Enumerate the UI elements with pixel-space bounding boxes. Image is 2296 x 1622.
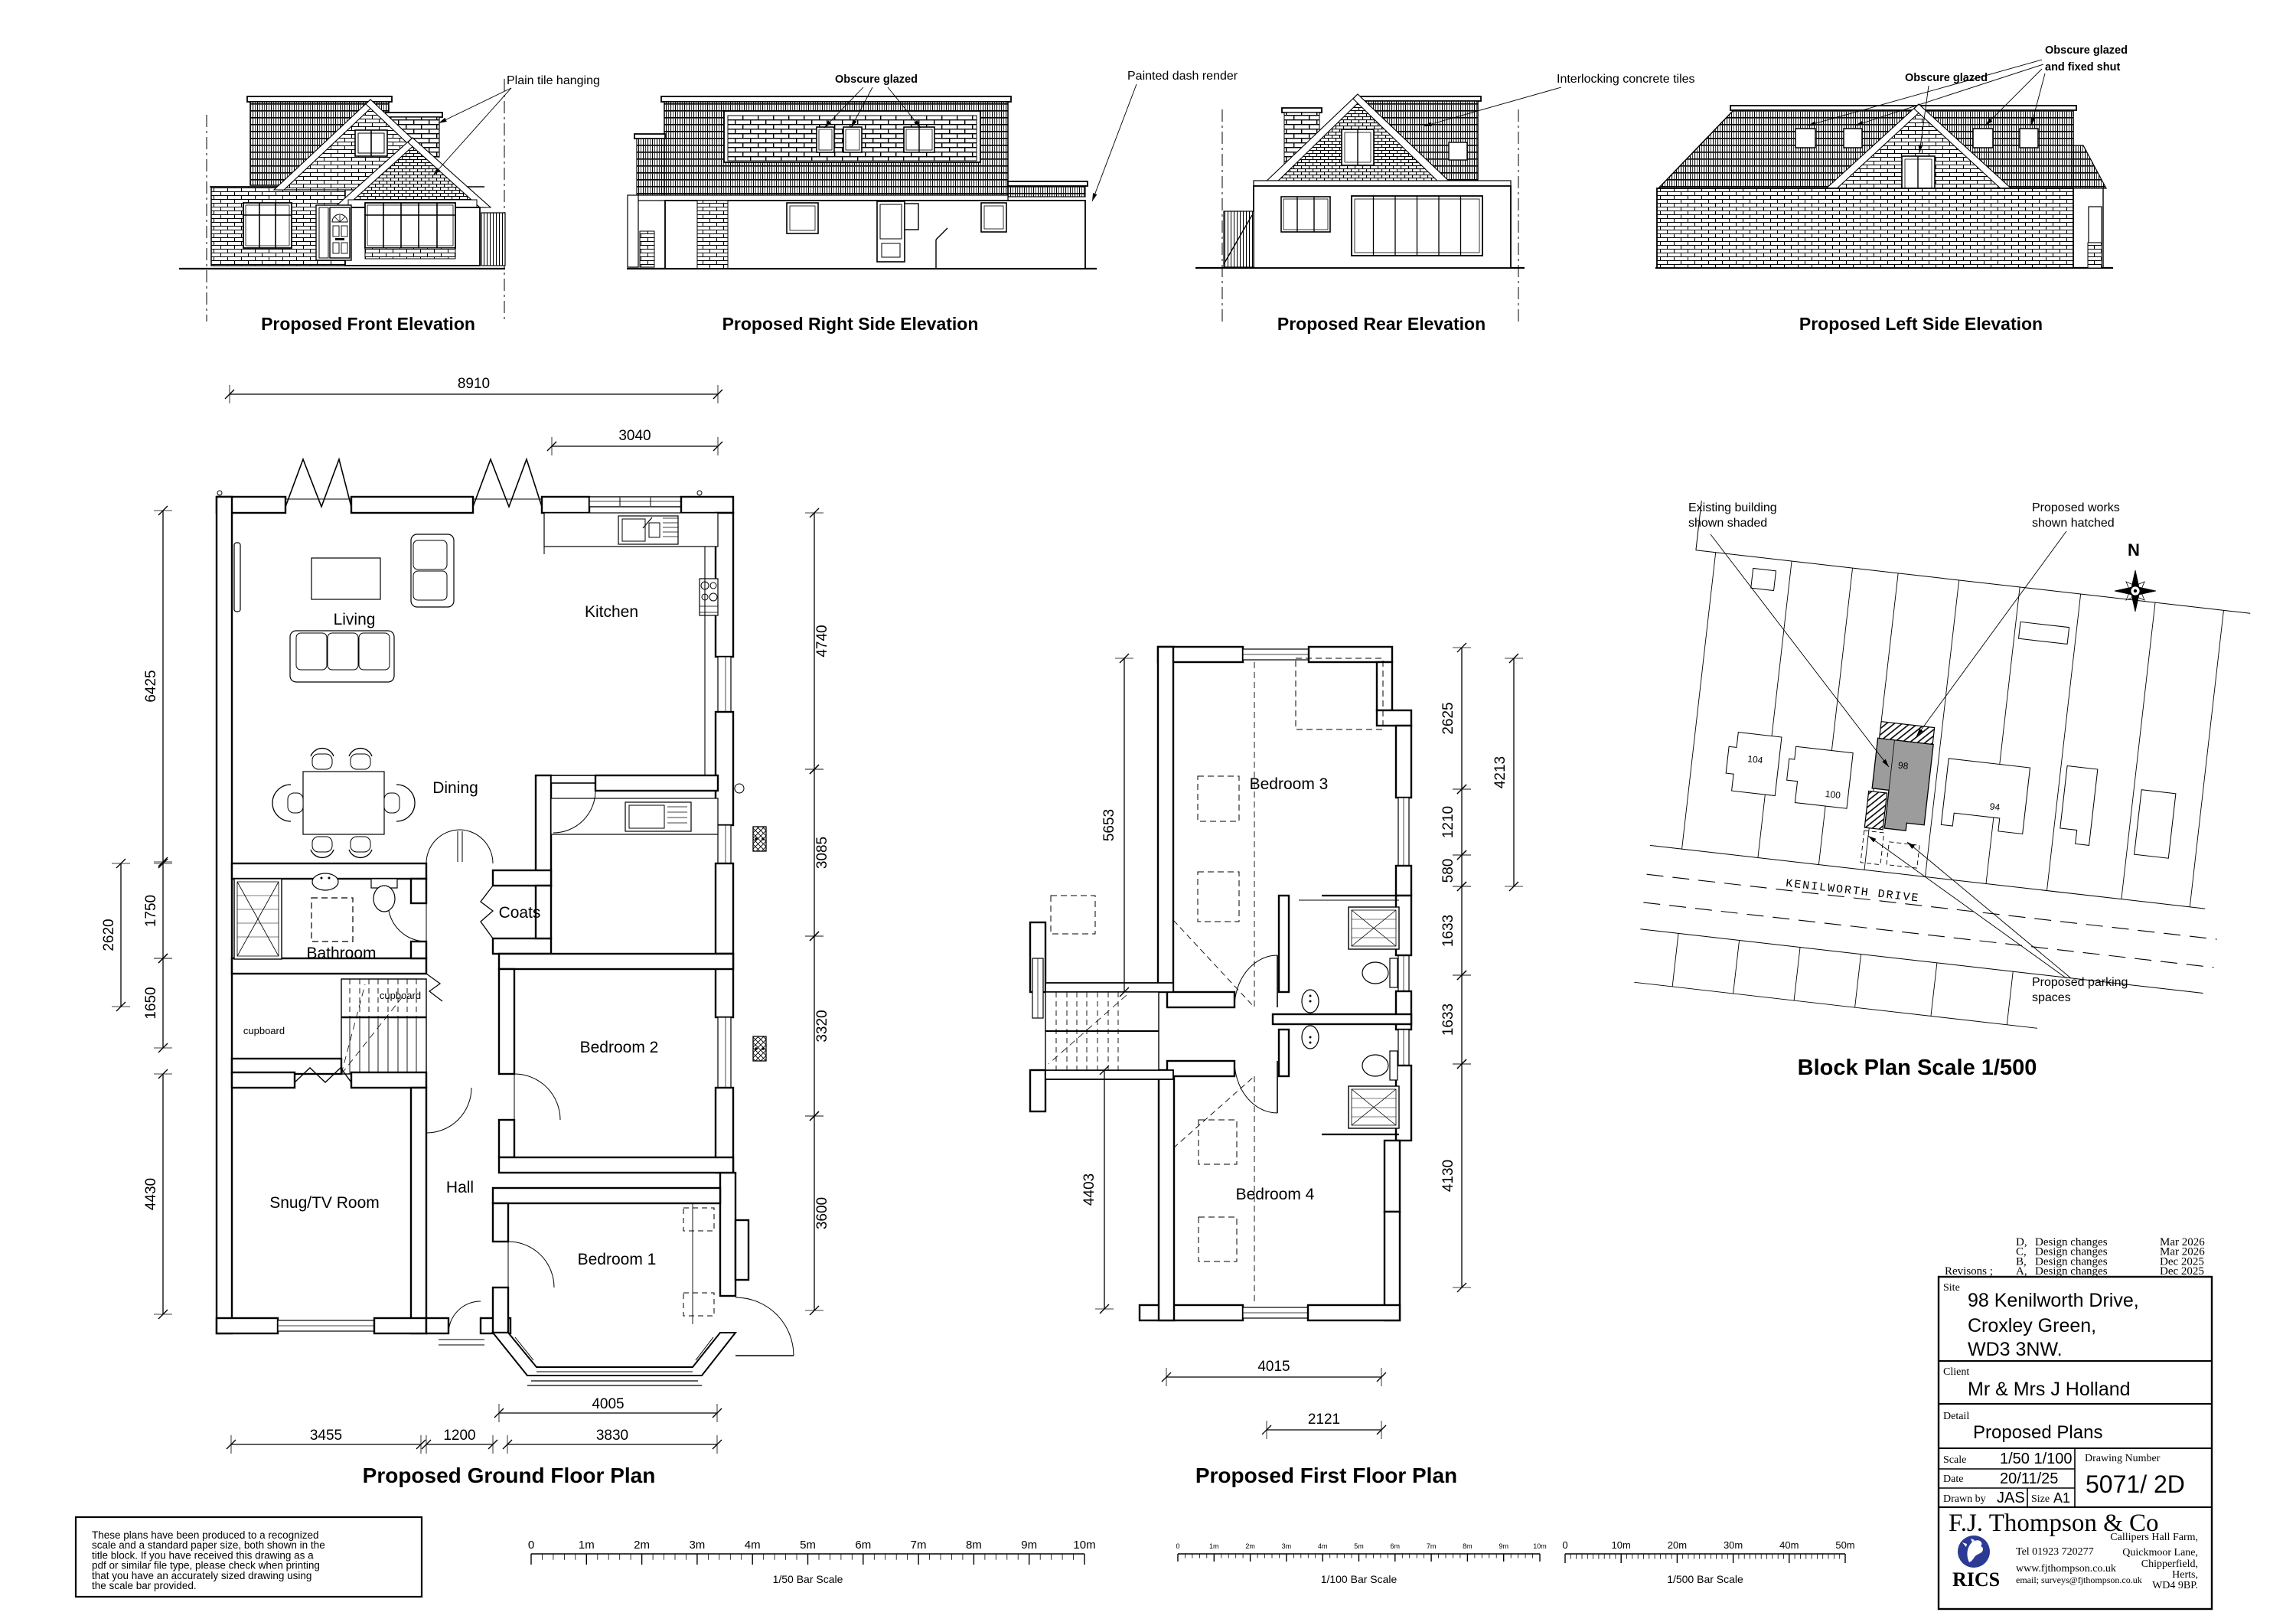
svg-text:2m: 2m bbox=[1245, 1542, 1255, 1550]
svg-text:580: 580 bbox=[1440, 859, 1456, 883]
svg-text:3600: 3600 bbox=[814, 1197, 830, 1229]
svg-text:4m: 4m bbox=[1318, 1542, 1328, 1550]
svg-text:Callipers Hall Farm,: Callipers Hall Farm, bbox=[2110, 1532, 2198, 1543]
svg-text:Bedroom 2: Bedroom 2 bbox=[580, 1039, 659, 1056]
svg-text:Interlocking concrete tiles: Interlocking concrete tiles bbox=[1557, 73, 1695, 86]
svg-text:6m: 6m bbox=[1391, 1542, 1401, 1550]
svg-text:1750: 1750 bbox=[143, 895, 159, 927]
svg-text:4403: 4403 bbox=[1081, 1173, 1097, 1206]
svg-text:50m: 50m bbox=[1835, 1539, 1854, 1551]
svg-text:7m: 7m bbox=[1427, 1542, 1437, 1550]
svg-text:8m: 8m bbox=[966, 1539, 982, 1552]
svg-text:2620: 2620 bbox=[101, 919, 117, 951]
svg-text:Chipperfield,: Chipperfield, bbox=[2141, 1558, 2198, 1570]
svg-text:Existing building: Existing building bbox=[1688, 501, 1777, 514]
svg-text:RICS: RICS bbox=[1952, 1568, 2000, 1591]
svg-text:1633: 1633 bbox=[1440, 1004, 1456, 1036]
svg-text:3455: 3455 bbox=[310, 1428, 342, 1444]
svg-text:spaces: spaces bbox=[2032, 991, 2071, 1004]
svg-text:Snug/TV Room: Snug/TV Room bbox=[269, 1194, 380, 1212]
svg-text:2121: 2121 bbox=[1308, 1411, 1340, 1428]
svg-text:Painted dash render: Painted dash render bbox=[1127, 70, 1238, 83]
svg-text:94: 94 bbox=[1989, 801, 2001, 812]
svg-text:Proposed Plans: Proposed Plans bbox=[1973, 1422, 2102, 1443]
svg-text:Kitchen: Kitchen bbox=[585, 603, 638, 621]
svg-text:0: 0 bbox=[1176, 1542, 1179, 1550]
svg-text:Quickmoor Lane,: Quickmoor Lane, bbox=[2122, 1547, 2198, 1558]
svg-text:1/50 Bar Scale: 1/50 Bar Scale bbox=[773, 1573, 843, 1585]
svg-text:0: 0 bbox=[528, 1539, 534, 1552]
svg-text:Dining: Dining bbox=[432, 779, 478, 797]
svg-text:the scale bar provided.: the scale bar provided. bbox=[92, 1580, 197, 1591]
svg-text:104: 104 bbox=[1747, 753, 1764, 765]
svg-text:4740: 4740 bbox=[814, 625, 830, 657]
svg-text:Drawn by: Drawn by bbox=[1943, 1493, 1986, 1505]
svg-text:WD3 3NW.: WD3 3NW. bbox=[1968, 1339, 2063, 1360]
svg-text:Proposed First Floor Plan: Proposed First Floor Plan bbox=[1195, 1464, 1457, 1487]
svg-text:Plain tile hanging: Plain tile hanging bbox=[507, 74, 600, 87]
svg-text:Scale: Scale bbox=[1943, 1454, 1966, 1466]
svg-text:4130: 4130 bbox=[1440, 1160, 1456, 1192]
svg-text:8910: 8910 bbox=[458, 376, 490, 392]
svg-text:1/100 Bar Scale: 1/100 Bar Scale bbox=[1321, 1573, 1397, 1585]
svg-text:Croxley Green,: Croxley Green, bbox=[1968, 1315, 2096, 1336]
svg-text:Proposed Left Side Elevation: Proposed Left Side Elevation bbox=[1799, 314, 2043, 334]
svg-text:3m: 3m bbox=[689, 1539, 705, 1552]
svg-text:Proposed Ground Floor Plan: Proposed Ground Floor Plan bbox=[363, 1464, 656, 1487]
svg-text:Obscure glazed: Obscure glazed bbox=[2045, 44, 2128, 57]
svg-text:Block Plan Scale 1/500: Block Plan Scale 1/500 bbox=[1798, 1056, 2037, 1080]
svg-text:WD4 9BP.: WD4 9BP. bbox=[2152, 1580, 2198, 1591]
svg-text:Tel 01923 720277: Tel 01923 720277 bbox=[2016, 1546, 2094, 1558]
svg-text:shown shaded: shown shaded bbox=[1688, 517, 1767, 530]
svg-text:Client: Client bbox=[1943, 1366, 1969, 1378]
svg-text:www.fjthompson.co.uk: www.fjthompson.co.uk bbox=[2016, 1563, 2116, 1575]
svg-text:Bedroom 3: Bedroom 3 bbox=[1250, 775, 1329, 793]
svg-text:Date: Date bbox=[1943, 1474, 1963, 1485]
svg-text:4430: 4430 bbox=[143, 1178, 159, 1210]
svg-text:Bedroom 1: Bedroom 1 bbox=[578, 1251, 657, 1268]
svg-text:Bedroom 4: Bedroom 4 bbox=[1236, 1186, 1315, 1203]
svg-text:9m: 9m bbox=[1021, 1539, 1037, 1552]
svg-text:1633: 1633 bbox=[1440, 915, 1456, 947]
svg-text:1650: 1650 bbox=[143, 987, 159, 1019]
svg-text:1m: 1m bbox=[1209, 1542, 1219, 1550]
svg-text:N: N bbox=[2128, 540, 2140, 560]
svg-text:JAS: JAS bbox=[1997, 1490, 2025, 1506]
svg-text:4005: 4005 bbox=[592, 1396, 624, 1412]
svg-text:10m: 10m bbox=[1073, 1539, 1095, 1552]
svg-text:Proposed Right Side Elevation: Proposed Right Side Elevation bbox=[722, 314, 979, 334]
svg-text:4213: 4213 bbox=[1492, 756, 1508, 788]
svg-text:98 Kenilworth Drive,: 98 Kenilworth Drive, bbox=[1968, 1290, 2139, 1311]
svg-text:cupboard: cupboard bbox=[380, 990, 421, 1001]
svg-text:5m: 5m bbox=[800, 1539, 816, 1552]
svg-text:1/500 Bar Scale: 1/500 Bar Scale bbox=[1667, 1573, 1743, 1585]
svg-text:Dec 2025: Dec 2025 bbox=[2160, 1265, 2204, 1278]
svg-text:5071/ 2D: 5071/ 2D bbox=[2086, 1470, 2185, 1498]
svg-text:Living: Living bbox=[334, 611, 376, 628]
svg-text:Herts,: Herts, bbox=[2172, 1569, 2198, 1581]
svg-text:1200: 1200 bbox=[443, 1428, 475, 1444]
svg-text:Size: Size bbox=[2031, 1493, 2050, 1505]
svg-text:100: 100 bbox=[1825, 788, 1841, 801]
svg-text:4015: 4015 bbox=[1257, 1359, 1290, 1375]
svg-text:Coats: Coats bbox=[499, 904, 541, 922]
svg-text:3830: 3830 bbox=[596, 1428, 628, 1444]
svg-text:10m: 10m bbox=[1612, 1539, 1631, 1551]
svg-text:cupboard: cupboard bbox=[243, 1025, 285, 1036]
svg-text:Obscure glazed: Obscure glazed bbox=[1905, 72, 1988, 84]
svg-text:0: 0 bbox=[1562, 1539, 1567, 1551]
svg-text:1m: 1m bbox=[579, 1539, 595, 1552]
svg-text:6425: 6425 bbox=[143, 670, 159, 702]
svg-text:1210: 1210 bbox=[1440, 806, 1456, 838]
svg-text:email; surveys@fjthompson.co.u: email; surveys@fjthompson.co.uk bbox=[2016, 1575, 2142, 1585]
svg-text:Design changes: Design changes bbox=[2035, 1265, 2108, 1278]
svg-text:3320: 3320 bbox=[814, 1010, 830, 1042]
svg-text:40m: 40m bbox=[1779, 1539, 1799, 1551]
svg-text:Proposed Front Elevation: Proposed Front Elevation bbox=[261, 314, 475, 334]
svg-text:10m: 10m bbox=[1533, 1542, 1547, 1550]
svg-text:20m: 20m bbox=[1668, 1539, 1687, 1551]
svg-text:8m: 8m bbox=[1463, 1542, 1473, 1550]
svg-text:Drawing Number: Drawing Number bbox=[2085, 1453, 2161, 1464]
svg-text:1/50 1/100: 1/50 1/100 bbox=[2000, 1451, 2073, 1467]
svg-text:3m: 3m bbox=[1282, 1542, 1292, 1550]
svg-text:Site: Site bbox=[1943, 1282, 1960, 1294]
svg-text:2m: 2m bbox=[634, 1539, 650, 1552]
svg-text:Proposed works: Proposed works bbox=[2032, 501, 2120, 514]
svg-text:6m: 6m bbox=[855, 1539, 871, 1552]
svg-text:Hall: Hall bbox=[446, 1179, 474, 1196]
svg-text:A,: A, bbox=[2016, 1265, 2027, 1278]
svg-text:20/11/25: 20/11/25 bbox=[2000, 1470, 2058, 1487]
svg-text:Mr & Mrs J Holland: Mr & Mrs J Holland bbox=[1968, 1379, 2131, 1400]
svg-text:5653: 5653 bbox=[1101, 809, 1117, 841]
svg-text:Obscure glazed: Obscure glazed bbox=[835, 73, 918, 86]
svg-text:Bathroom: Bathroom bbox=[306, 945, 376, 962]
svg-text:3085: 3085 bbox=[814, 837, 830, 869]
svg-text:30m: 30m bbox=[1724, 1539, 1743, 1551]
svg-text:A1: A1 bbox=[2053, 1490, 2070, 1506]
svg-text:shown hatched: shown hatched bbox=[2032, 517, 2115, 530]
svg-text:9m: 9m bbox=[1499, 1542, 1508, 1550]
svg-text:98: 98 bbox=[1897, 760, 1909, 772]
svg-text:Proposed Rear Elevation: Proposed Rear Elevation bbox=[1277, 314, 1486, 334]
svg-text:2625: 2625 bbox=[1440, 702, 1456, 734]
svg-text:Revisons ;: Revisons ; bbox=[1945, 1265, 1993, 1278]
svg-text:Detail: Detail bbox=[1943, 1411, 1969, 1422]
svg-text:5m: 5m bbox=[1354, 1542, 1364, 1550]
svg-text:4m: 4m bbox=[745, 1539, 761, 1552]
svg-text:7m: 7m bbox=[911, 1539, 927, 1552]
svg-text:3040: 3040 bbox=[618, 428, 651, 444]
svg-text:Proposed parking: Proposed parking bbox=[2032, 976, 2128, 989]
svg-text:and fixed shut: and fixed shut bbox=[2045, 61, 2120, 73]
